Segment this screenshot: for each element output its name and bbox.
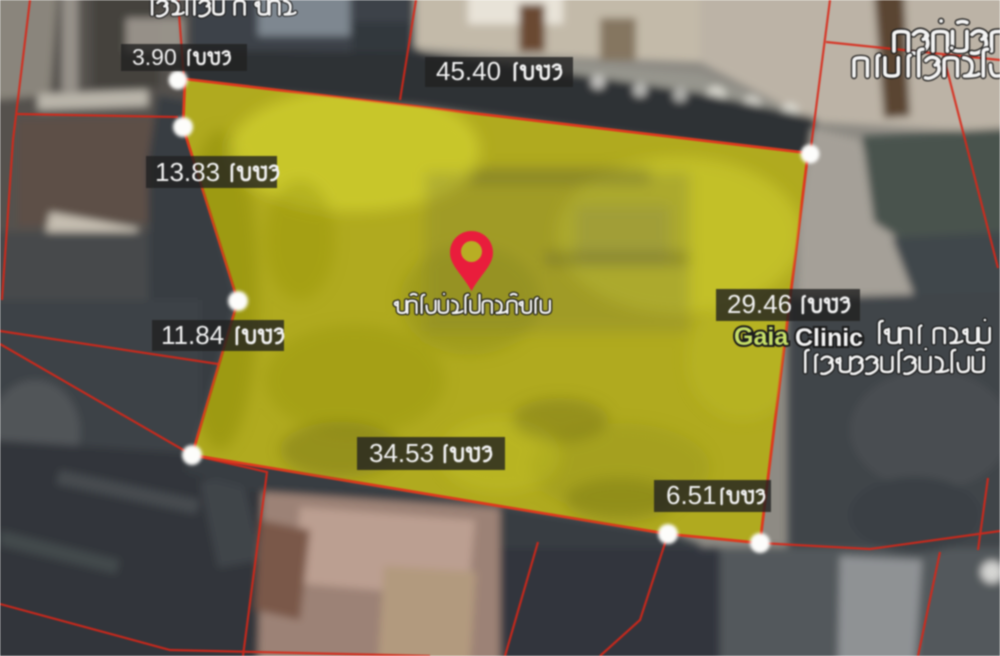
- svg-text:3.90: 3.90: [132, 44, 177, 70]
- svg-text:29.46: 29.46: [727, 289, 792, 319]
- svg-text:Clinic: Clinic: [795, 324, 863, 352]
- svg-text:6.51: 6.51: [666, 480, 717, 510]
- svg-text:Gaia: Gaia: [734, 323, 789, 351]
- svg-text:45.40: 45.40: [436, 56, 501, 86]
- svg-text:11.84: 11.84: [161, 320, 224, 350]
- svg-text:13.83: 13.83: [155, 157, 220, 187]
- svg-text:34.53: 34.53: [369, 438, 434, 468]
